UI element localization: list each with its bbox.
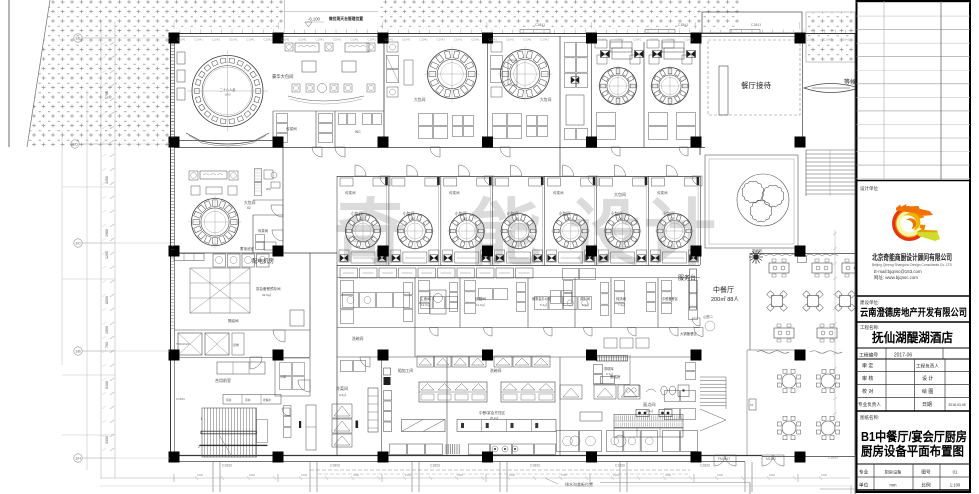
svg-text:11.9㎡: 11.9㎡ bbox=[476, 302, 485, 307]
svg-text:1: 1 bbox=[201, 417, 203, 421]
svg-text:C1041: C1041 bbox=[315, 38, 324, 42]
svg-text:01: 01 bbox=[953, 470, 958, 475]
svg-text:传菜间: 传菜间 bbox=[553, 190, 564, 195]
svg-text:豪华大包间: 豪华大包间 bbox=[272, 73, 293, 80]
svg-text:3300: 3300 bbox=[769, 473, 776, 477]
svg-text:700: 700 bbox=[105, 342, 109, 348]
svg-text:传菜间: 传菜间 bbox=[345, 190, 356, 195]
svg-text:12.3㎡: 12.3㎡ bbox=[421, 302, 430, 307]
svg-text:2: 2 bbox=[198, 445, 200, 449]
svg-text:1/B: 1/B bbox=[75, 350, 81, 354]
svg-text:C1041: C1041 bbox=[177, 38, 186, 42]
svg-text:工程负责人: 工程负责人 bbox=[916, 363, 939, 370]
svg-text:02: 02 bbox=[247, 206, 251, 210]
svg-text:3300: 3300 bbox=[561, 473, 568, 477]
svg-text:1600: 1600 bbox=[224, 93, 231, 97]
svg-text:05: 05 bbox=[567, 217, 571, 221]
svg-text:专业负责人: 专业负责人 bbox=[858, 401, 881, 408]
svg-text:C1041: C1041 bbox=[488, 38, 497, 42]
svg-text:5.9㎡: 5.9㎡ bbox=[582, 302, 589, 307]
svg-text:C1041: C1041 bbox=[419, 38, 428, 42]
svg-text:图纸名称:: 图纸名称: bbox=[860, 414, 879, 421]
svg-text:FM1847: FM1847 bbox=[718, 457, 730, 461]
svg-text:中餐/宴会烹饪区: 中餐/宴会烹饪区 bbox=[479, 410, 506, 415]
svg-text:3300: 3300 bbox=[613, 473, 620, 477]
svg-text:02: 02 bbox=[411, 217, 415, 221]
svg-text:C1041: C1041 bbox=[841, 38, 850, 42]
svg-text:小包间: 小包间 bbox=[559, 211, 571, 216]
svg-text:B1中餐厅/宴会厅厨房: B1中餐厅/宴会厅厨房 bbox=[861, 429, 967, 444]
svg-text:C1041: C1041 bbox=[523, 38, 532, 42]
svg-text:比例: 比例 bbox=[921, 482, 931, 489]
svg-text:C1041: C1041 bbox=[598, 38, 607, 42]
svg-text:洗碗间: 洗碗间 bbox=[352, 336, 364, 341]
svg-text:1/H: 1/H bbox=[75, 457, 81, 461]
svg-text:C1041: C1041 bbox=[540, 38, 549, 42]
svg-text:工程名称:: 工程名称: bbox=[860, 324, 879, 331]
svg-text:C1041: C1041 bbox=[385, 38, 394, 42]
svg-text:1/D: 1/D bbox=[72, 143, 78, 147]
svg-text:31.9㎡: 31.9㎡ bbox=[262, 292, 271, 297]
svg-text:云南澄德房地产开发有限公司: 云南澄德房地产开发有限公司 bbox=[860, 306, 967, 319]
svg-text:3300: 3300 bbox=[509, 473, 516, 477]
svg-text:设 计: 设 计 bbox=[922, 375, 933, 382]
svg-text:隔油间: 隔油间 bbox=[228, 318, 239, 323]
svg-text:C1833: C1833 bbox=[615, 464, 625, 468]
svg-text:工程编号: 工程编号 bbox=[859, 352, 878, 359]
svg-text:3300: 3300 bbox=[821, 473, 828, 477]
svg-text:-6.100: -6.100 bbox=[308, 17, 321, 22]
svg-text:C1041: C1041 bbox=[806, 38, 815, 42]
svg-text:小包间: 小包间 bbox=[455, 211, 467, 216]
svg-text:审 定: 审 定 bbox=[862, 363, 873, 370]
svg-text:C1041: C1041 bbox=[246, 38, 255, 42]
svg-text:粗加工间: 粗加工间 bbox=[398, 368, 413, 373]
svg-text:C1041: C1041 bbox=[437, 38, 446, 42]
svg-text:M1842: M1842 bbox=[766, 457, 776, 461]
svg-text:C1833: C1833 bbox=[700, 464, 710, 468]
svg-text:C1041: C1041 bbox=[402, 38, 411, 42]
svg-text:C1041: C1041 bbox=[350, 38, 359, 42]
svg-text:小包间: 小包间 bbox=[662, 211, 674, 216]
svg-text:日期: 日期 bbox=[922, 402, 932, 408]
svg-text:排烟井: 排烟井 bbox=[263, 398, 271, 402]
svg-text:C1041: C1041 bbox=[685, 38, 694, 42]
svg-text:C1833: C1833 bbox=[176, 397, 185, 401]
svg-text:1/C: 1/C bbox=[75, 242, 81, 246]
svg-text:C1041: C1041 bbox=[367, 38, 376, 42]
svg-text:山餐口: 山餐口 bbox=[703, 314, 713, 319]
svg-text:1200: 1200 bbox=[105, 251, 109, 259]
svg-text:传菜间: 传菜间 bbox=[657, 190, 668, 195]
svg-text:能: 能 bbox=[469, 194, 541, 274]
svg-text:小包间: 小包间 bbox=[611, 211, 623, 216]
svg-text:3300: 3300 bbox=[301, 473, 308, 477]
svg-text:04: 04 bbox=[515, 217, 519, 221]
svg-text:C1041: C1041 bbox=[229, 38, 238, 42]
svg-text:1/E: 1/E bbox=[75, 37, 81, 41]
svg-text:大包间: 大包间 bbox=[614, 191, 626, 197]
svg-text:小库: 小库 bbox=[280, 374, 286, 379]
svg-text:专业: 专业 bbox=[859, 469, 869, 476]
svg-text:mm: mm bbox=[890, 483, 897, 488]
svg-text:1986: 1986 bbox=[105, 229, 109, 237]
svg-text:1:100: 1:100 bbox=[950, 483, 961, 488]
svg-text:合用前室: 合用前室 bbox=[215, 377, 231, 383]
svg-text:C1041: C1041 bbox=[212, 38, 221, 42]
svg-text:C1841: C1841 bbox=[678, 23, 688, 27]
svg-text:茶歇库: 茶歇库 bbox=[604, 366, 614, 371]
svg-text:厨房设备: 厨房设备 bbox=[885, 469, 903, 476]
svg-text:单位: 单位 bbox=[859, 482, 869, 489]
svg-text:大包间: 大包间 bbox=[414, 97, 426, 102]
svg-text:小包间: 小包间 bbox=[403, 211, 415, 216]
svg-text:9.3㎡: 9.3㎡ bbox=[646, 408, 653, 413]
svg-text:烧腊间: 烧腊间 bbox=[475, 296, 486, 301]
svg-text:2017-06: 2017-06 bbox=[894, 353, 913, 359]
svg-text:传菜间: 传菜间 bbox=[258, 228, 269, 233]
svg-text:大包间: 大包间 bbox=[540, 97, 552, 102]
svg-text:WC: WC bbox=[266, 187, 272, 191]
svg-text:TMD1924: TMD1924 bbox=[176, 342, 190, 346]
svg-text:等候: 等候 bbox=[844, 78, 856, 86]
svg-text:校 对: 校 对 bbox=[862, 388, 873, 395]
svg-text:传菜间: 传菜间 bbox=[449, 190, 460, 195]
svg-text:北京奇能商厨设计顾问有限公司: 北京奇能商厨设计顾问有限公司 bbox=[872, 252, 952, 262]
svg-text:宴会备餐预存间: 宴会备餐预存间 bbox=[256, 286, 281, 291]
svg-text:面点间: 面点间 bbox=[643, 401, 656, 408]
svg-text:C1833: C1833 bbox=[222, 464, 232, 468]
svg-text:二十八人桌: 二十八人桌 bbox=[220, 87, 237, 92]
svg-text:7.3㎡: 7.3㎡ bbox=[618, 302, 625, 307]
svg-text:C1833: C1833 bbox=[430, 464, 440, 468]
svg-text:C1833: C1833 bbox=[530, 464, 540, 468]
svg-text:3300: 3300 bbox=[457, 473, 464, 477]
svg-text:Beijing Qineng Shangchu Design: Beijing Qineng Shangchu Design Consultan… bbox=[872, 263, 953, 267]
svg-text:中餐厅: 中餐厅 bbox=[713, 285, 734, 294]
svg-text:C1041: C1041 bbox=[667, 38, 676, 42]
svg-text:C1041: C1041 bbox=[615, 38, 624, 42]
svg-text:调料间: 调料间 bbox=[580, 296, 591, 301]
svg-text:网址: www.bjqnsc.com: 网址: www.bjqnsc.com bbox=[874, 274, 918, 281]
svg-text:C1833: C1833 bbox=[330, 464, 340, 468]
svg-text:小包间: 小包间 bbox=[351, 211, 363, 216]
svg-text:C1041: C1041 bbox=[298, 38, 307, 42]
svg-text:200㎡ 88人: 200㎡ 88人 bbox=[711, 295, 739, 303]
svg-text:01: 01 bbox=[359, 217, 363, 221]
svg-text:9.6㎡: 9.6㎡ bbox=[339, 392, 346, 397]
svg-text:绘 图: 绘 图 bbox=[922, 388, 933, 395]
svg-text:3300: 3300 bbox=[665, 473, 672, 477]
svg-text:服务台: 服务台 bbox=[678, 274, 696, 282]
svg-text:3300: 3300 bbox=[405, 473, 412, 477]
svg-text:小包间: 小包间 bbox=[507, 211, 519, 216]
svg-text:E-mail:bjqnsc@163.com: E-mail:bjqnsc@163.com bbox=[874, 269, 922, 274]
svg-text:06: 06 bbox=[619, 217, 623, 221]
svg-text:3300: 3300 bbox=[105, 436, 109, 444]
svg-text:3300: 3300 bbox=[197, 473, 204, 477]
svg-text:C1041: C1041 bbox=[471, 38, 480, 42]
svg-text:C1041: C1041 bbox=[506, 38, 515, 42]
svg-text:中餐备餐区: 中餐备餐区 bbox=[662, 296, 679, 301]
svg-text:配电机房: 配电机房 bbox=[252, 257, 275, 265]
svg-text:03: 03 bbox=[463, 217, 467, 221]
svg-text:建设单位:: 建设单位: bbox=[860, 299, 879, 306]
svg-text:做位现天台管理位置: 做位现天台管理位置 bbox=[328, 16, 363, 21]
svg-text:货梯: 货梯 bbox=[233, 342, 239, 347]
svg-text:C1833: C1833 bbox=[828, 456, 838, 460]
svg-text:餐厅接待: 餐厅接待 bbox=[741, 80, 771, 90]
svg-text:5.4㎡: 5.4㎡ bbox=[540, 302, 547, 307]
svg-text:C1041: C1041 bbox=[823, 38, 832, 42]
svg-text:C1041: C1041 bbox=[333, 38, 342, 42]
svg-text:C1841: C1841 bbox=[751, 23, 761, 27]
svg-text:K1: K1 bbox=[750, 403, 754, 407]
svg-text:蛋糕房: 蛋糕房 bbox=[610, 374, 621, 379]
svg-text:管委会办公室: 管委会办公室 bbox=[532, 296, 551, 301]
svg-text:6400: 6400 bbox=[105, 381, 109, 389]
svg-text:炖汤间: 炖汤间 bbox=[616, 296, 627, 301]
svg-text:8500: 8500 bbox=[105, 296, 109, 304]
svg-text:3300: 3300 bbox=[353, 473, 360, 477]
svg-text:C1041: C1041 bbox=[264, 38, 273, 42]
svg-text:冷菜间: 冷菜间 bbox=[336, 385, 348, 391]
svg-text:C1041: C1041 bbox=[633, 38, 642, 42]
svg-text:洗碗间: 洗碗间 bbox=[490, 368, 502, 373]
svg-text:C1041: C1041 bbox=[650, 38, 659, 42]
svg-text:C1041: C1041 bbox=[281, 38, 290, 42]
svg-text:风井: 风井 bbox=[245, 398, 251, 402]
svg-text:WC: WC bbox=[355, 130, 361, 134]
svg-text:3300: 3300 bbox=[717, 473, 724, 477]
svg-text:抚仙湖醍湖酒店: 抚仙湖醍湖酒店 bbox=[872, 330, 953, 345]
svg-text:C1841: C1841 bbox=[535, 23, 545, 27]
svg-text:设计单位: 设计单位 bbox=[860, 185, 878, 192]
svg-text:2018-03-05: 2018-03-05 bbox=[948, 403, 965, 407]
svg-text:C1041: C1041 bbox=[194, 38, 203, 42]
svg-text:审 核: 审 核 bbox=[862, 375, 873, 382]
svg-text:风井: 风井 bbox=[226, 398, 232, 402]
svg-text:4450: 4450 bbox=[105, 176, 109, 184]
svg-text:07: 07 bbox=[670, 217, 674, 221]
svg-text:厨房设备平面布置图: 厨房设备平面布置图 bbox=[861, 444, 964, 459]
svg-text:1500: 1500 bbox=[105, 326, 109, 334]
svg-text:5708: 5708 bbox=[105, 91, 109, 99]
svg-text:蓄电池室: 蓄电池室 bbox=[240, 246, 254, 251]
svg-text:C1041: C1041 bbox=[454, 38, 463, 42]
svg-text:3300: 3300 bbox=[249, 473, 256, 477]
svg-text:大包间: 大包间 bbox=[244, 200, 256, 205]
